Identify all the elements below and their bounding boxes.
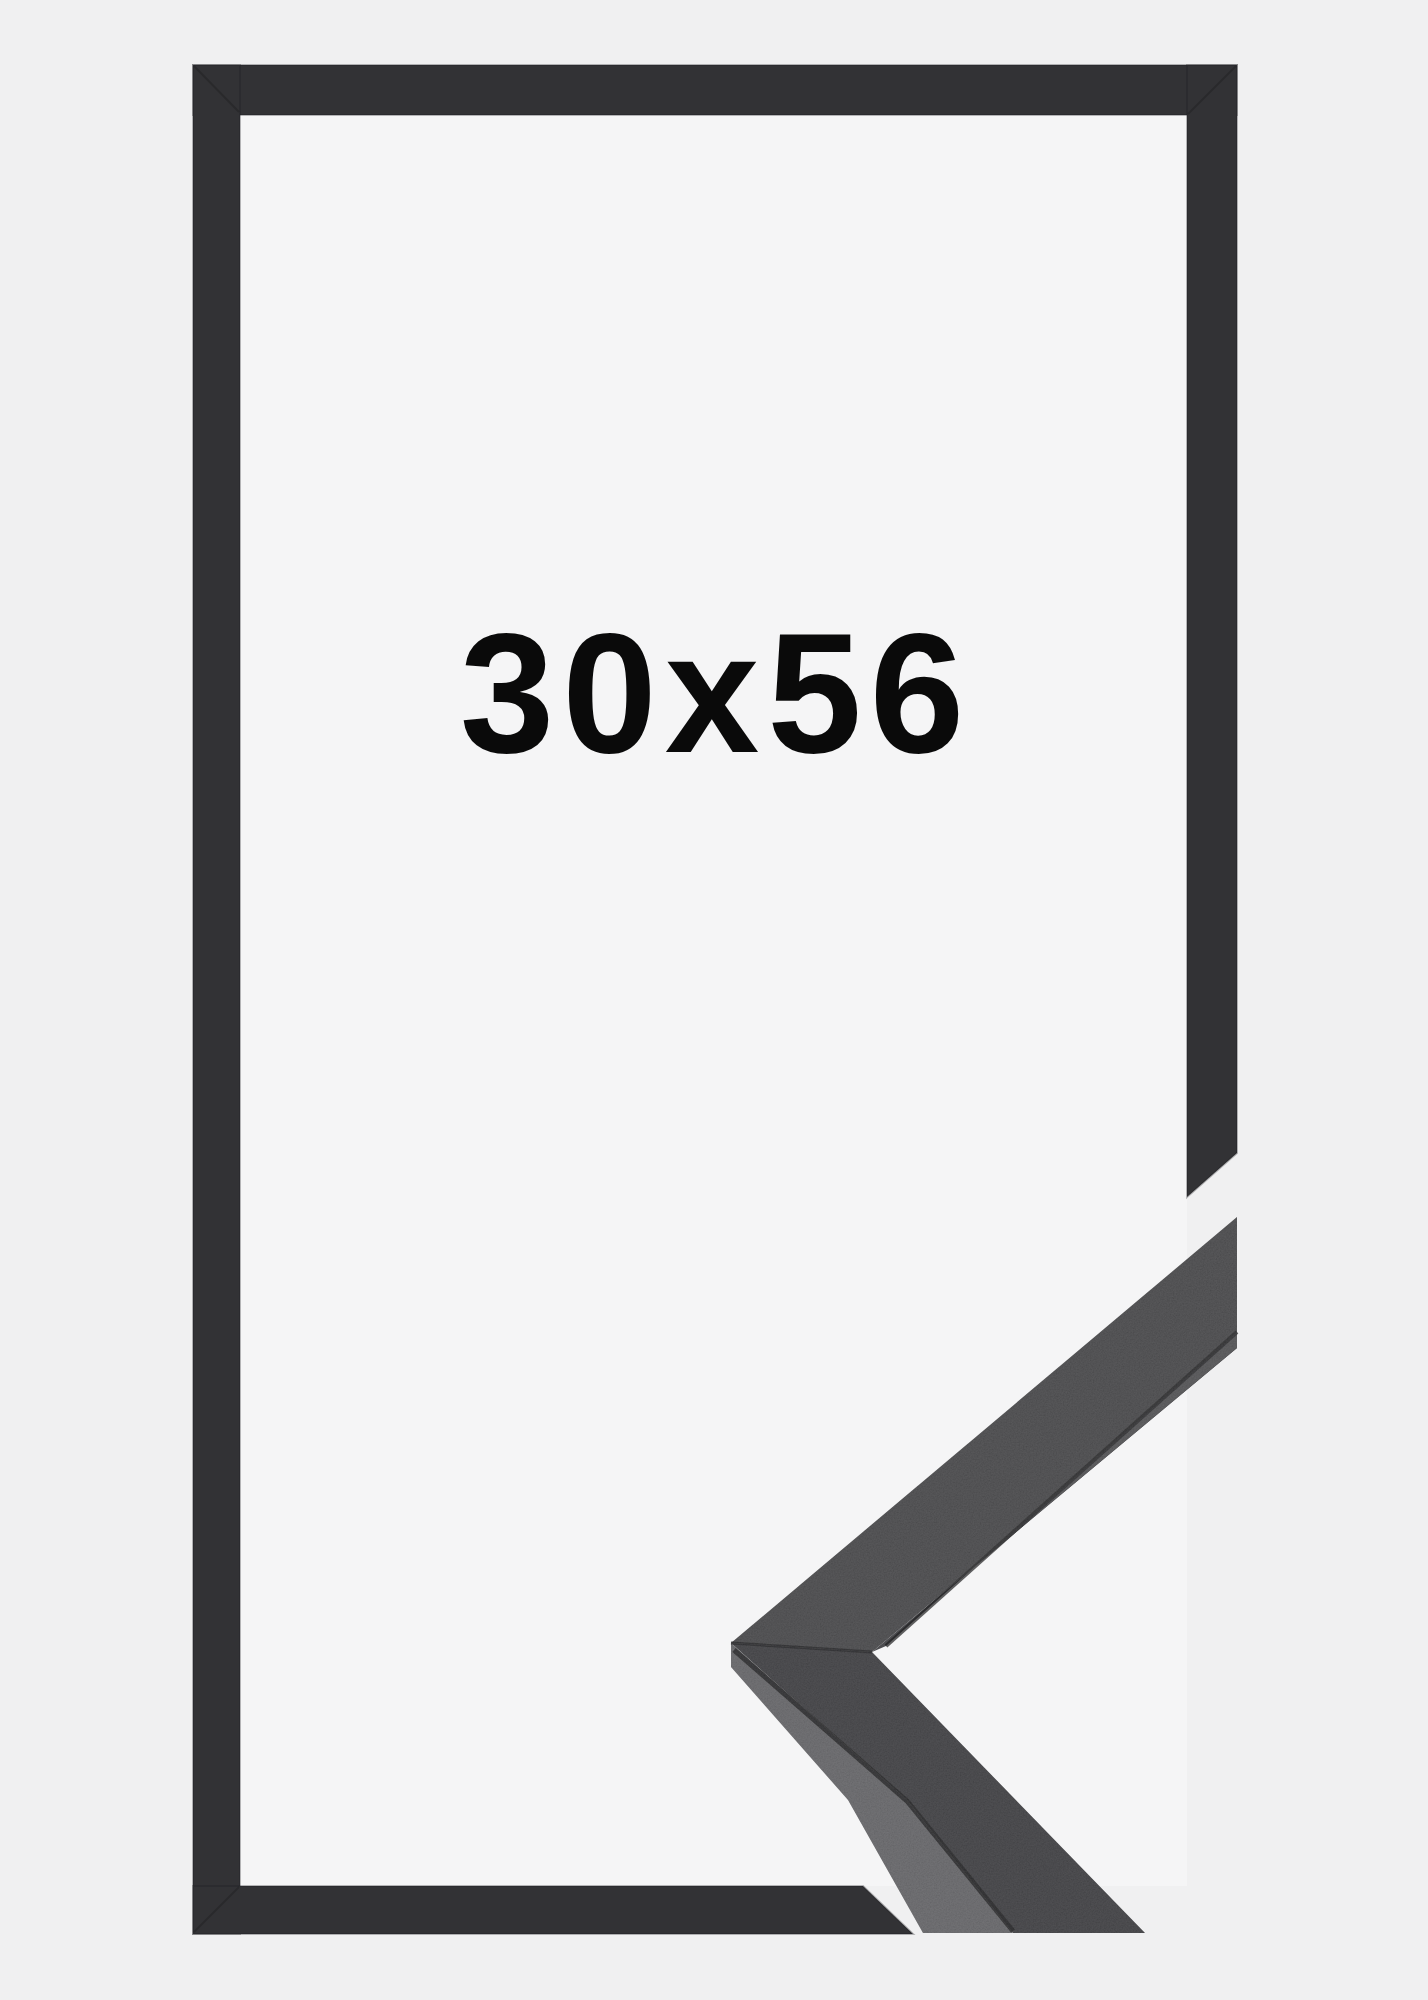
frame-border-right-cut xyxy=(1187,65,1237,1197)
frame-product-image: 30x56 xyxy=(0,0,1428,2000)
frame-product-graphic: 30x56 xyxy=(0,0,1428,2000)
frame-opening xyxy=(240,113,1187,1886)
frame-border-top xyxy=(193,65,1237,115)
frame-border-left xyxy=(193,65,240,1934)
size-label: 30x56 xyxy=(460,598,973,788)
frame-border-bottom-cut xyxy=(193,1886,913,1934)
